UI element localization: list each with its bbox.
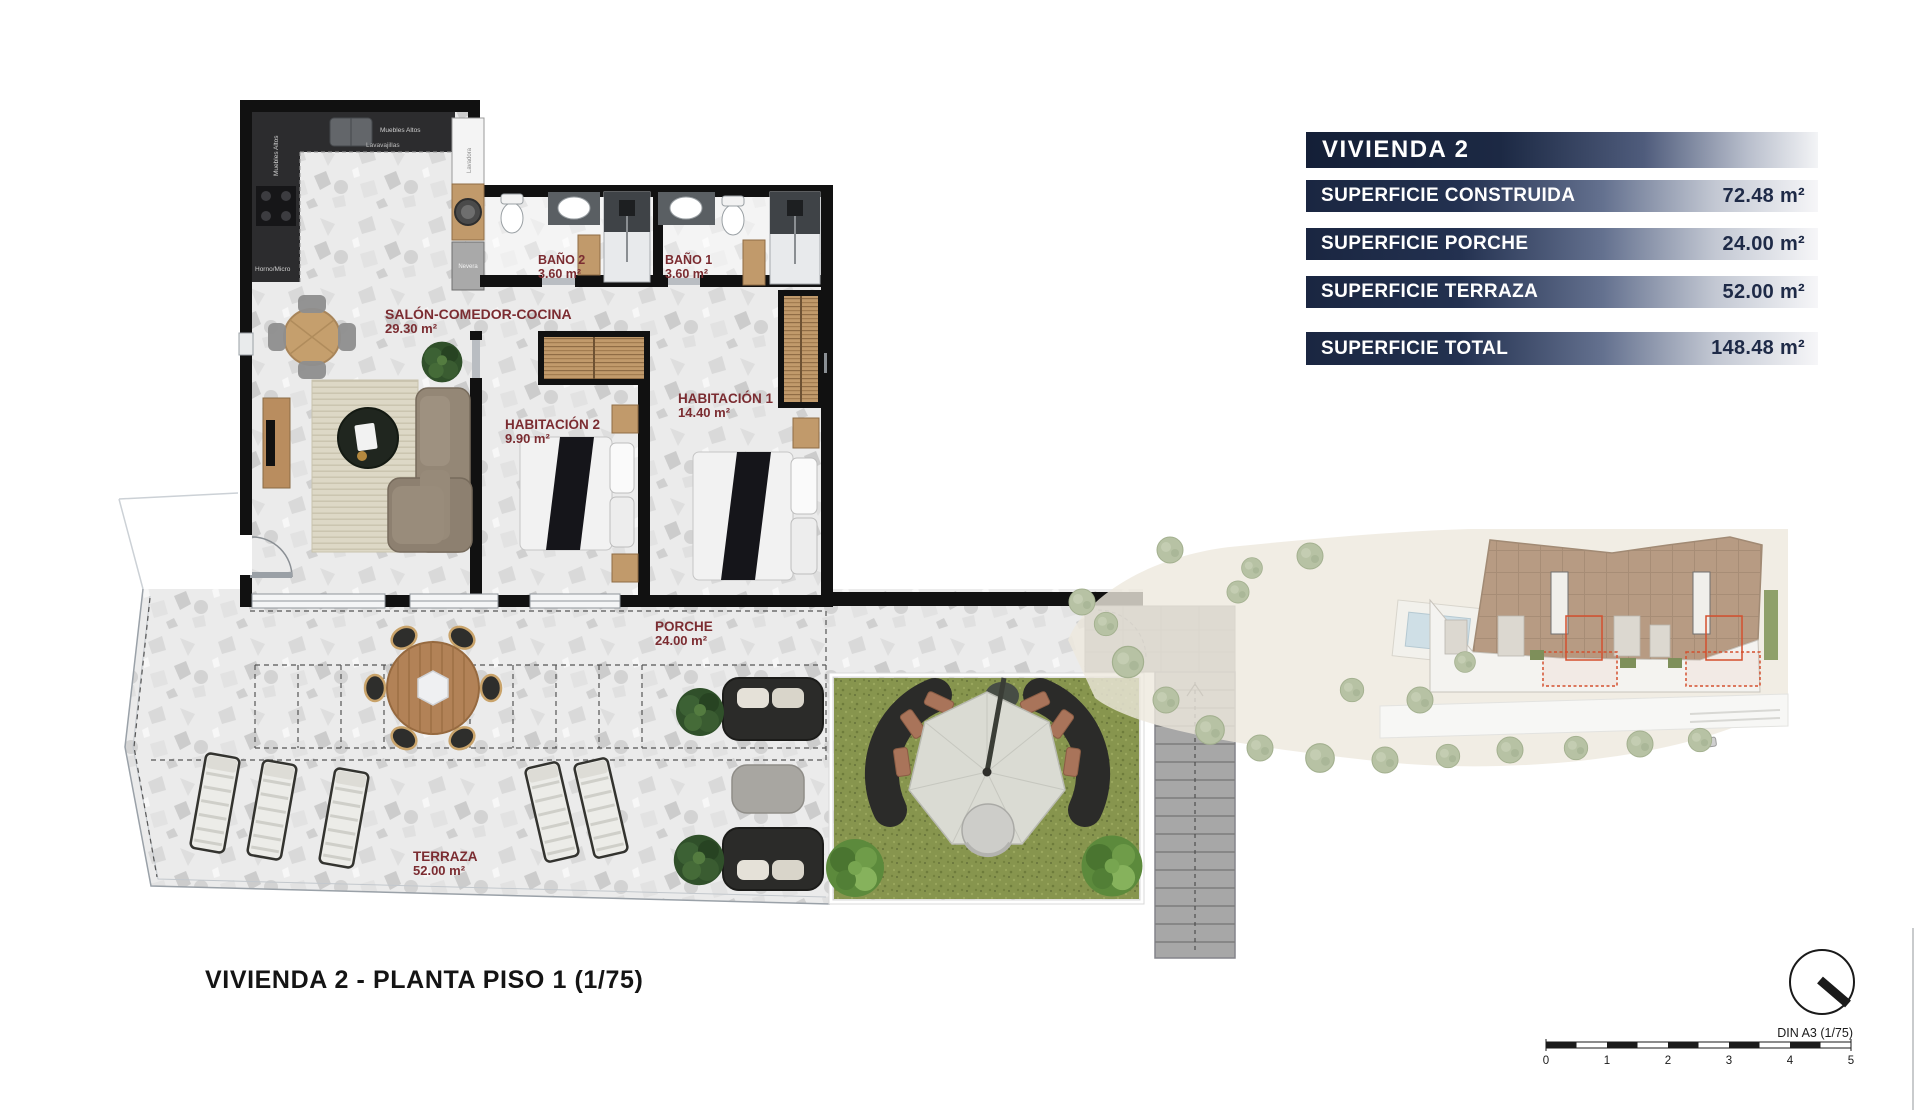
table-total-row: SUPERFICIE TOTAL 148.48 m² xyxy=(1306,332,1818,365)
label-lavadora: Lavadora xyxy=(467,147,473,173)
north-compass xyxy=(1790,950,1854,1014)
toilet xyxy=(501,203,523,233)
row-value: 24.00 m² xyxy=(1723,233,1805,256)
row-label: SUPERFICIE CONSTRUIDA xyxy=(1306,185,1575,207)
room-label-bano2: BAÑO 2 xyxy=(538,252,585,267)
row-value: 52.00 m² xyxy=(1723,281,1805,304)
row-label: SUPERFICIE TOTAL xyxy=(1306,338,1508,360)
toilet xyxy=(722,205,744,235)
plan-title: VIVIENDA 2 - PLANTA PISO 1 (1/75) xyxy=(205,966,643,995)
plant xyxy=(422,342,463,383)
room-label-terraza: TERRAZA xyxy=(413,849,478,864)
row-value: 72.48 m² xyxy=(1723,185,1805,208)
closet-hab1 xyxy=(778,290,824,408)
stove xyxy=(256,186,296,226)
room-label-bano1: BAÑO 1 xyxy=(665,252,712,267)
tower xyxy=(1693,572,1710,634)
tree xyxy=(1082,836,1143,897)
room-label-porche: PORCHE xyxy=(655,619,713,634)
room-area-hab2: 9.90 m² xyxy=(505,431,550,446)
label-horno-micro: Horno/Micro xyxy=(255,266,291,273)
scale-tick: 5 xyxy=(1848,1055,1854,1067)
plant xyxy=(676,688,724,736)
scale-tick: 2 xyxy=(1665,1055,1671,1067)
scale-bar: DIN A3 (1/75) 0 1 2 3 4 5 xyxy=(1543,1026,1854,1067)
scale-tick: 3 xyxy=(1726,1055,1732,1067)
label-lavavajillas: Lavavajillas xyxy=(366,142,400,149)
label-muebles-altos-left: Muebles Altos xyxy=(273,135,280,176)
scale-tick: 0 xyxy=(1543,1055,1549,1067)
nightstand xyxy=(612,554,638,582)
sheet-edge-line xyxy=(1912,928,1914,1110)
scale-tick: 1 xyxy=(1604,1055,1610,1067)
table-title: VIVIENDA 2 xyxy=(1306,136,1469,164)
room-label-hab2: HABITACIÓN 2 xyxy=(505,417,600,432)
row-label: SUPERFICIE PORCHE xyxy=(1306,233,1528,255)
neighbour-ghost-outline xyxy=(119,493,238,589)
scale-tick-labels: 0 1 2 3 4 5 xyxy=(1543,1055,1854,1067)
plant xyxy=(674,835,724,885)
nightstand xyxy=(612,405,638,433)
room-area-hab1: 14.40 m² xyxy=(678,405,731,420)
closet-hab2 xyxy=(538,331,650,385)
room-label-salon: SALÓN-COMEDOR-COCINA xyxy=(385,305,572,322)
label-nevera: Nevera xyxy=(458,264,478,270)
tv xyxy=(266,420,275,466)
sheet-format-label: DIN A3 (1/75) xyxy=(1777,1026,1853,1040)
room-area-salon: 29.30 m² xyxy=(385,321,438,336)
room-area-bano2: 3.60 m² xyxy=(538,267,581,281)
plan-sheet: SALÓN-COMEDOR-COCINA 29.30 m² BAÑO 2 3.6… xyxy=(0,0,1920,1110)
label-muebles-altos-top: Muebles Altos xyxy=(380,127,421,134)
surface-summary-table: VIVIENDA 2 SUPERFICIE CONSTRUIDA 72.48 m… xyxy=(1306,132,1818,365)
nightstand xyxy=(793,418,819,448)
row-label: SUPERFICIE TERRAZA xyxy=(1306,281,1538,303)
room-area-porche: 24.00 m² xyxy=(655,633,708,648)
apartment xyxy=(239,106,827,608)
table-row: SUPERFICIE PORCHE 24.00 m² xyxy=(1306,228,1818,260)
scale-tick: 4 xyxy=(1787,1055,1794,1067)
bath-cabinet xyxy=(743,240,765,285)
room-label-hab1: HABITACIÓN 1 xyxy=(678,391,773,406)
room-area-terraza: 52.00 m² xyxy=(413,863,466,878)
porch-coffee-table xyxy=(732,765,804,813)
table-row: SUPERFICIE CONSTRUIDA 72.48 m² xyxy=(1306,180,1818,212)
room-area-bano1: 3.60 m² xyxy=(665,267,708,281)
table-title-bar: VIVIENDA 2 xyxy=(1306,132,1818,168)
tree xyxy=(826,839,884,897)
table-row: SUPERFICIE TERRAZA 52.00 m² xyxy=(1306,276,1818,308)
row-value: 148.48 m² xyxy=(1711,337,1805,360)
